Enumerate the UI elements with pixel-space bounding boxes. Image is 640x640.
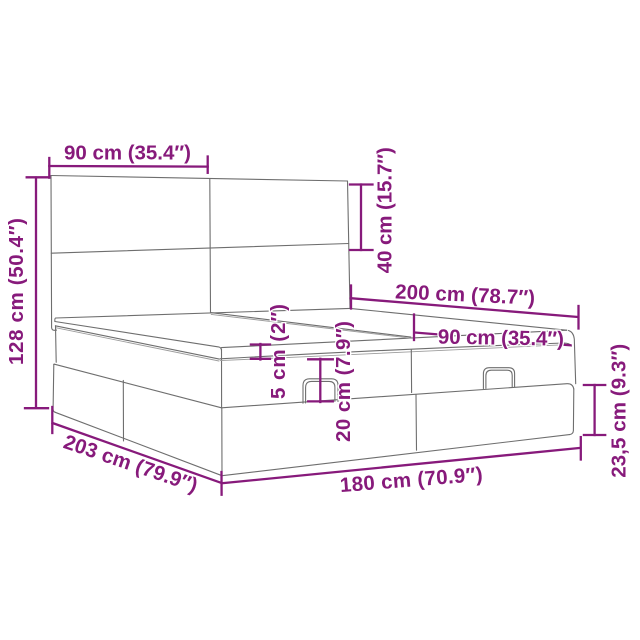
svg-text:128 cm (50.4″): 128 cm (50.4″) [5,218,28,365]
svg-text:40 cm (15.7″): 40 cm (15.7″) [373,147,396,273]
svg-text:20 cm (7.9″): 20 cm (7.9″) [332,321,355,442]
svg-text:90 cm (35.4″): 90 cm (35.4″) [64,141,191,164]
svg-text:23,5 cm (9.3″): 23,5 cm (9.3″) [607,344,630,478]
svg-text:90 cm (35.4″): 90 cm (35.4″) [438,326,564,351]
svg-text:5 cm (2″): 5 cm (2″) [267,304,290,399]
